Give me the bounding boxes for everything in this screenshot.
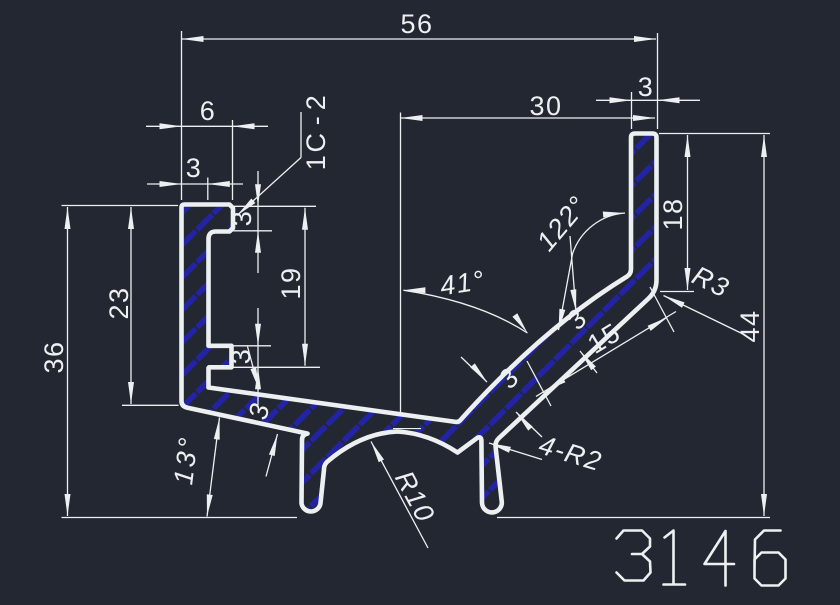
svg-text:C: C: [301, 132, 331, 153]
svg-text:36: 36: [39, 340, 69, 373]
svg-text:2: 2: [301, 94, 331, 111]
svg-text:3: 3: [186, 153, 203, 183]
svg-text:1: 1: [301, 154, 331, 171]
svg-text:44: 44: [735, 309, 765, 342]
svg-text:19: 19: [276, 266, 306, 299]
svg-text:6: 6: [200, 96, 217, 126]
svg-text:18: 18: [658, 197, 688, 230]
svg-text:23: 23: [104, 286, 134, 319]
svg-text:3: 3: [227, 210, 257, 227]
svg-text:56: 56: [400, 9, 433, 39]
svg-text:-: -: [301, 115, 331, 126]
svg-text:3: 3: [638, 72, 655, 102]
svg-text:30: 30: [529, 91, 562, 121]
svg-text:13°: 13°: [168, 433, 204, 486]
